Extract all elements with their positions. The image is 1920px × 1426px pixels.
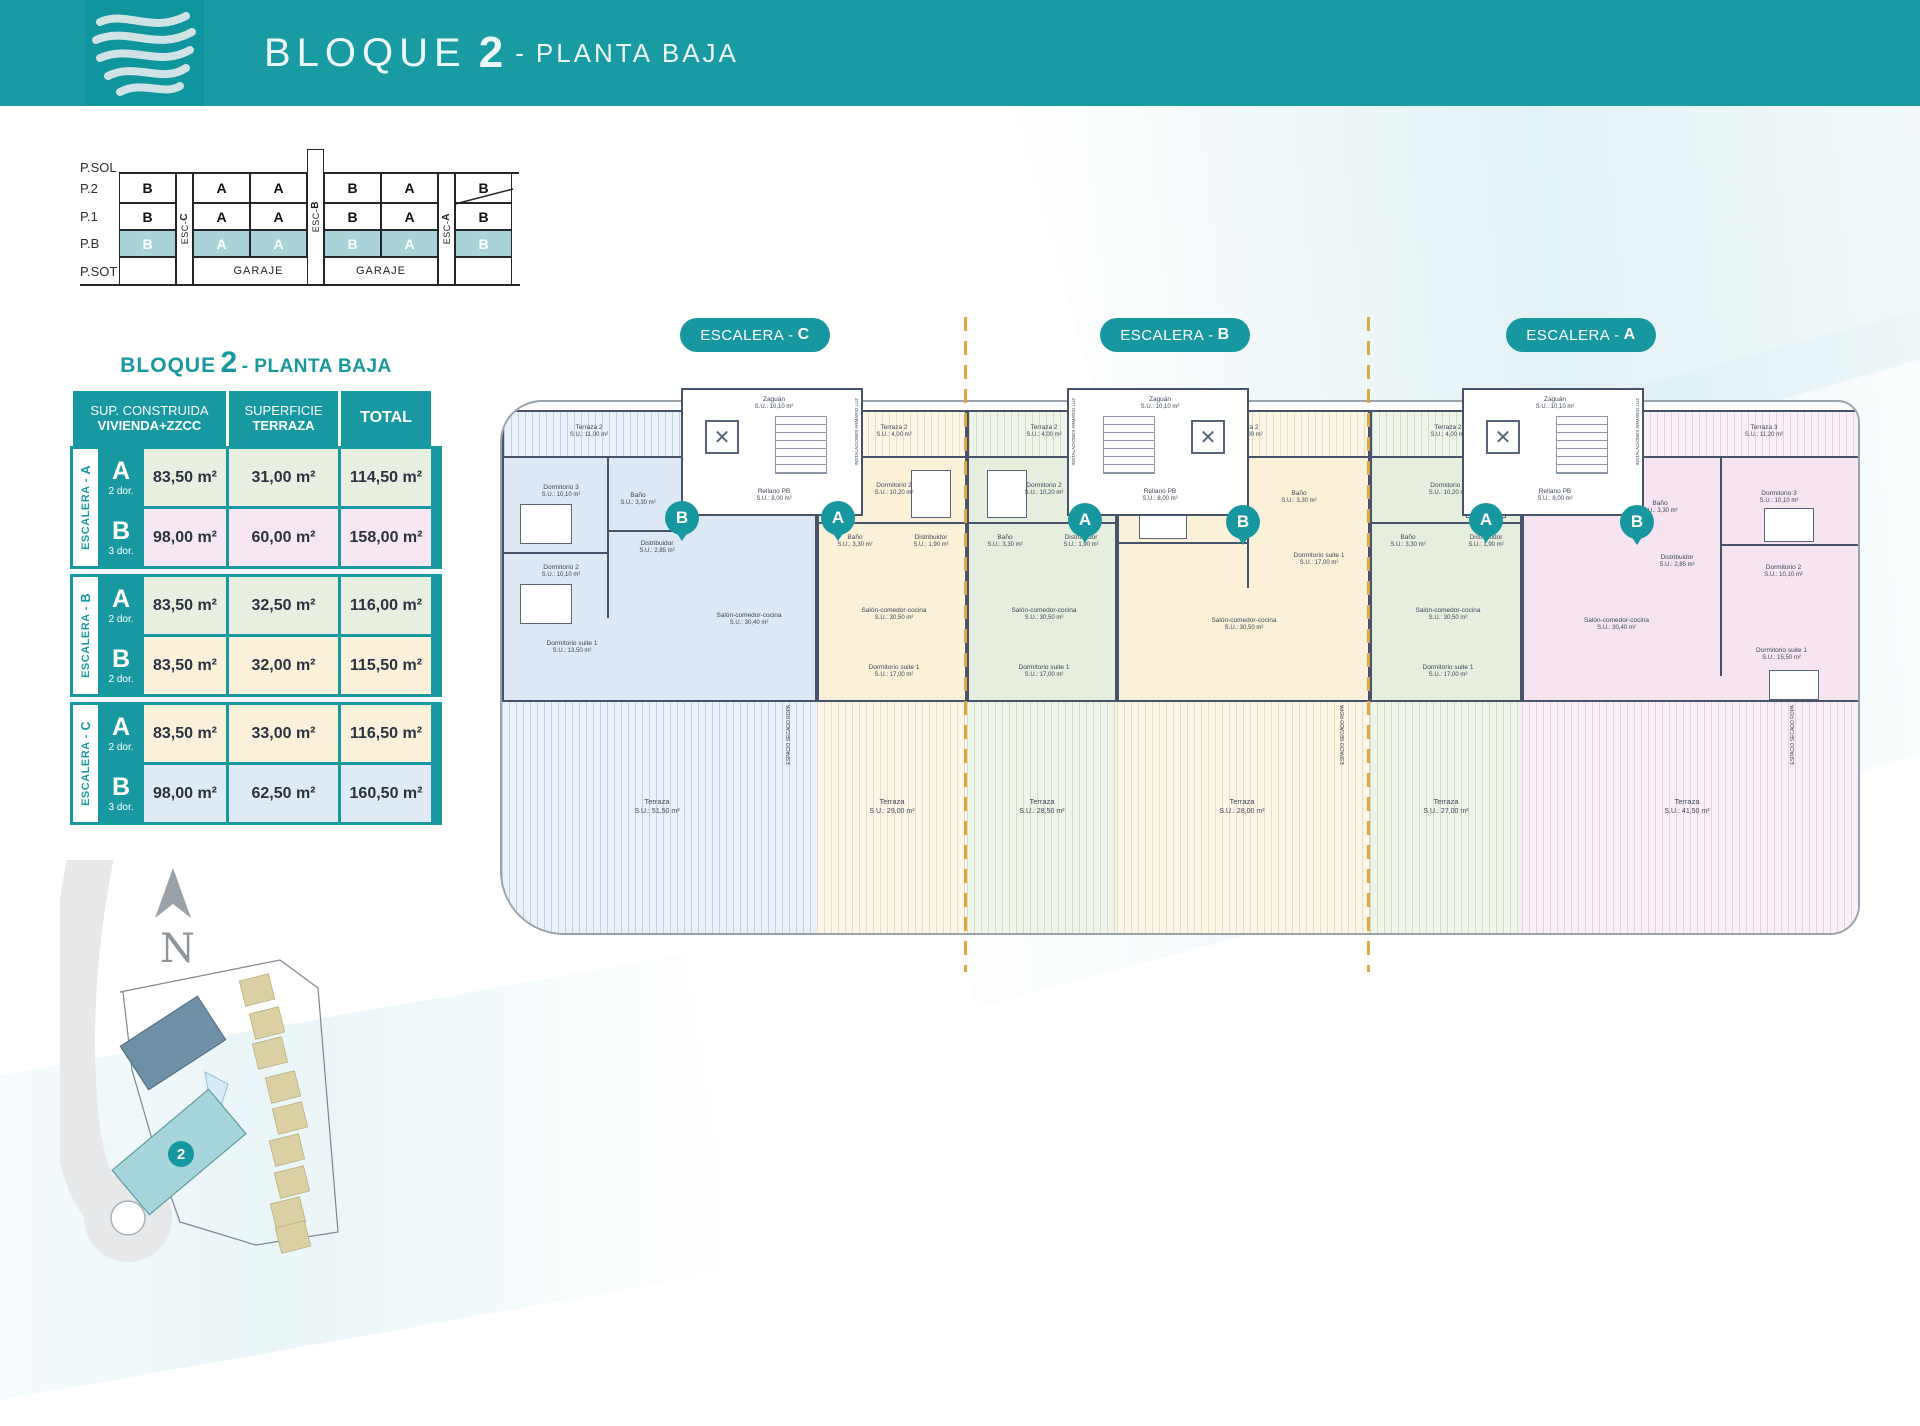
elevator-icon: ✕ bbox=[1486, 420, 1520, 454]
escalera-c-pill: ESCALERA - C bbox=[680, 318, 830, 352]
room-label: Salón-comedor-cocinaS.U.: 30,50 m² bbox=[989, 607, 1099, 623]
total-value: 116,00 m² bbox=[341, 577, 431, 634]
stair-core-c: ZaguánS.U.: 10,10 m² ✕ Rellano PBS.U.: 8… bbox=[681, 388, 863, 516]
surfaces-table: BLOQUE 2 - PLANTA BAJA SUP. CONSTRUIDAVI… bbox=[70, 346, 442, 825]
terraza-value: 32,00 m² bbox=[229, 637, 338, 694]
rellano-label: Rellano PBS.U.: 8,00 m² bbox=[1510, 488, 1600, 504]
zaguan-label: ZaguánS.U.: 10,10 m² bbox=[729, 396, 819, 412]
zaguan-label: ZaguánS.U.: 10,10 m² bbox=[1115, 396, 1205, 412]
header-bar: BLOQUE 2 - PLANTA BAJA bbox=[0, 0, 1920, 106]
room-label: Dormitorio suite 1S.U.: 17,00 m² bbox=[994, 664, 1094, 680]
zaguan-label: ZaguánS.U.: 10,10 m² bbox=[1510, 396, 1600, 412]
stair-column-esc-a: ESC-A bbox=[438, 173, 455, 285]
unit-badge-b-a: A bbox=[1068, 503, 1102, 537]
stairs-icon bbox=[1103, 416, 1155, 474]
elevator-icon: ✕ bbox=[705, 420, 739, 454]
room-label: DistribuidorS.U.: 2,85 m² bbox=[622, 540, 692, 556]
escalera-a-pill: ESCALERA - A bbox=[1506, 318, 1656, 352]
construida-value: 98,00 m² bbox=[144, 765, 226, 822]
interior-wall bbox=[1720, 544, 1860, 546]
unit-type-cell: B3 dor. bbox=[101, 765, 141, 822]
esc-b-label: ESC-B bbox=[310, 201, 321, 232]
header-total: TOTAL bbox=[341, 391, 431, 446]
group-label-escalera-c: ESCALERA - C bbox=[73, 705, 98, 822]
terrace-b-a: TerrazaS.U.: 28,50 m² bbox=[967, 702, 1117, 933]
esc-a-label: ESC-A bbox=[441, 213, 452, 244]
room-label: Salón-comedor-cocinaS.U.: 30,40 m² bbox=[1559, 617, 1674, 633]
north-label: N bbox=[160, 926, 195, 972]
total-value: 158,00 m² bbox=[341, 509, 431, 566]
terrace-label: TerrazaS.U.: 41,50 m² bbox=[1622, 797, 1752, 816]
table-title: BLOQUE 2 - PLANTA BAJA bbox=[70, 346, 442, 380]
building-section-diagram: P.SOL P.2 P.1 P.B P.SOT B A A B A B B A … bbox=[80, 148, 530, 298]
terrace-a-a: TerrazaS.U.: 27,00 m² bbox=[1370, 702, 1522, 933]
north-arrow-icon: N bbox=[155, 868, 195, 972]
room-label: Dormitorio suite 1S.U.: 17,00 m² bbox=[1398, 664, 1498, 680]
room-label: Dormitorio 3S.U.: 10,10 m² bbox=[516, 484, 606, 500]
room-label: Dormitorio suite 1S.U.: 13,50 m² bbox=[522, 640, 622, 656]
stair-column-esc-b: ESC-B bbox=[307, 149, 324, 285]
unit-type-cell: A2 dor. bbox=[101, 449, 141, 506]
site-plan: N 2 bbox=[60, 860, 360, 1280]
esc-c-label: ESC-C bbox=[179, 213, 190, 244]
bed-furniture bbox=[520, 584, 572, 624]
header-superficie-terraza: SUPERFICIETERRAZA bbox=[229, 391, 338, 446]
waves-logo-icon bbox=[86, 0, 204, 106]
stairs-icon bbox=[1556, 416, 1608, 474]
title-number: 2 bbox=[479, 28, 503, 78]
table-title-planta: - PLANTA BAJA bbox=[242, 356, 392, 377]
table-title-bloque: BLOQUE bbox=[120, 354, 216, 377]
rellano-label: Rellano PBS.U.: 8,00 m² bbox=[729, 488, 819, 504]
table-title-number: 2 bbox=[221, 346, 238, 379]
bed-furniture bbox=[520, 504, 572, 544]
total-value: 115,50 m² bbox=[341, 637, 431, 694]
bed-furniture bbox=[1764, 508, 1814, 542]
room-label: Dormitorio suite 1S.U.: 17,00 m² bbox=[1279, 552, 1359, 568]
construida-value: 83,50 m² bbox=[144, 637, 226, 694]
brand-logo bbox=[86, 0, 204, 106]
terraza-value: 32,50 m² bbox=[229, 577, 338, 634]
page-title: BLOQUE 2 - PLANTA BAJA bbox=[264, 0, 739, 106]
construida-value: 83,50 m² bbox=[144, 577, 226, 634]
terraza-value: 33,00 m² bbox=[229, 705, 338, 762]
unit-type-cell: A2 dor. bbox=[101, 705, 141, 762]
unit-badge-a-a: A bbox=[1469, 503, 1503, 537]
room-label: Dormitorio suite 1S.U.: 17,00 m² bbox=[844, 664, 944, 680]
room-label: Salón-comedor-cocinaS.U.: 30,50 m² bbox=[1184, 617, 1304, 633]
townhouses bbox=[239, 974, 310, 1253]
unit-badge-a-b: B bbox=[1620, 505, 1654, 539]
interior-wall bbox=[1119, 542, 1247, 544]
interior-wall bbox=[1720, 458, 1722, 676]
escalera-b-pill: ESCALERA - B bbox=[1100, 318, 1250, 352]
secado-ropa-label: ESPACIO SECADO ROPA bbox=[786, 705, 792, 765]
rellano-label: Rellano PBS.U.: 8,00 m² bbox=[1115, 488, 1205, 504]
room-label: BañoS.U.: 3,30 m² bbox=[1378, 534, 1438, 550]
room-label: DistribuidorS.U.: 2,85 m² bbox=[1642, 554, 1712, 570]
room-label: BañoS.U.: 3,30 m² bbox=[1269, 490, 1329, 506]
unit-type-cell: A2 dor. bbox=[101, 577, 141, 634]
division-line-b-a bbox=[1367, 317, 1370, 972]
construida-value: 83,50 m² bbox=[144, 449, 226, 506]
stair-core-a: ZaguánS.U.: 10,10 m² ✕ Rellano PBS.U.: 8… bbox=[1462, 388, 1644, 516]
title-planta: PLANTA BAJA bbox=[536, 38, 739, 69]
block-2-number: 2 bbox=[177, 1146, 185, 1163]
unit-badge-c-b: B bbox=[665, 501, 699, 535]
total-value: 160,50 m² bbox=[341, 765, 431, 822]
terrace-label: TerrazaS.U.: 27,00 m² bbox=[1386, 797, 1506, 816]
instalaciones-label: INSTALACIONES ARMARIO LUZ bbox=[1071, 398, 1076, 465]
roundabout-island bbox=[111, 1201, 145, 1235]
room-label: Dormitorio 3S.U.: 10,10 m² bbox=[1729, 490, 1829, 506]
header-sup-construida: SUP. CONSTRUIDAVIVIENDA+ZZCC bbox=[73, 391, 226, 446]
construida-value: 98,00 m² bbox=[144, 509, 226, 566]
terrace-c-b: TerrazaS.U.: 51,50 m² bbox=[502, 702, 817, 933]
terrace-b-b: TerrazaS.U.: 28,00 m² bbox=[1117, 702, 1370, 933]
table-group-escalera-c: ESCALERA - C A2 dor. 83,50 m² 33,00 m² 1… bbox=[70, 702, 442, 825]
instalaciones-label: INSTALACIONES ARMARIO LUZ bbox=[1635, 398, 1640, 465]
elevator-icon: ✕ bbox=[1191, 420, 1225, 454]
room-label: Salón-comedor-cocinaS.U.: 30,50 m² bbox=[839, 607, 949, 623]
terraza-value: 31,00 m² bbox=[229, 449, 338, 506]
room-label: Terraza 2S.U.: 11,00 m² bbox=[534, 424, 644, 440]
title-bloque: BLOQUE bbox=[264, 31, 467, 76]
table-header-row: SUP. CONSTRUIDAVIVIENDA+ZZCC SUPERFICIET… bbox=[70, 388, 442, 449]
construida-value: 83,50 m² bbox=[144, 705, 226, 762]
division-line-c-b bbox=[964, 317, 967, 972]
table-group-escalera-a: ESCALERA - A A2 dor. 83,50 m² 31,00 m² 1… bbox=[70, 446, 442, 569]
unit-type-cell: B2 dor. bbox=[101, 637, 141, 694]
total-value: 116,50 m² bbox=[341, 705, 431, 762]
terraza-value: 62,50 m² bbox=[229, 765, 338, 822]
group-label-escalera-a: ESCALERA - A bbox=[73, 449, 98, 566]
room-label: Salón-comedor-cocinaS.U.: 30,50 m² bbox=[1393, 607, 1503, 623]
unit-type-cell: B3 dor. bbox=[101, 509, 141, 566]
section-diagonal-roof bbox=[80, 148, 530, 298]
stair-column-esc-c: ESC-C bbox=[176, 173, 193, 285]
terrace-label: TerrazaS.U.: 28,50 m² bbox=[982, 797, 1102, 816]
stair-core-b: ZaguánS.U.: 10,10 m² ✕ Rellano PBS.U.: 8… bbox=[1067, 388, 1249, 516]
room-label: Dormitorio 2S.U.: 10,10 m² bbox=[1736, 564, 1831, 580]
floor-plan: ESCALERA - C ESCALERA - B ESCALERA - A T… bbox=[500, 315, 1895, 980]
title-dash: - bbox=[515, 38, 524, 69]
table-group-escalera-b: ESCALERA - B A2 dor. 83,50 m² 32,50 m² 1… bbox=[70, 574, 442, 697]
room-label: BañoS.U.: 3,30 m² bbox=[975, 534, 1035, 550]
group-label-escalera-b: ESCALERA - B bbox=[73, 577, 98, 694]
terrace-label: TerrazaS.U.: 28,00 m² bbox=[1182, 797, 1302, 816]
unit-badge-b-b: B bbox=[1226, 505, 1260, 539]
secado-ropa-label: ESPACIO SECADO ROPA bbox=[1340, 705, 1346, 765]
room-label: Terraza 3S.U.: 11,20 m² bbox=[1704, 424, 1824, 440]
stairs-icon bbox=[775, 416, 827, 474]
room-label: BañoS.U.: 3,30 m² bbox=[612, 492, 664, 508]
terrace-a-b: TerrazaS.U.: 41,50 m² bbox=[1522, 702, 1860, 933]
room-label: Dormitorio suite 1S.U.: 15,50 m² bbox=[1729, 647, 1834, 663]
terrace-c-a: TerrazaS.U.: 29,00 m² bbox=[817, 702, 967, 933]
total-value: 114,50 m² bbox=[341, 449, 431, 506]
terrace-label: TerrazaS.U.: 51,50 m² bbox=[592, 797, 722, 816]
room-label: Dormitorio 2S.U.: 10,10 m² bbox=[516, 564, 606, 580]
terrace-label: TerrazaS.U.: 29,00 m² bbox=[832, 797, 952, 816]
room-label: Salón-comedor-cocinaS.U.: 30,40 m² bbox=[694, 612, 804, 628]
terraza-value: 60,00 m² bbox=[229, 509, 338, 566]
interior-wall bbox=[504, 552, 607, 554]
secado-ropa-label: ESPACIO SECADO ROPA bbox=[1790, 705, 1796, 765]
interior-wall bbox=[607, 458, 609, 618]
instalaciones-label: INSTALACIONES ARMARIO LUZ bbox=[854, 398, 859, 465]
road bbox=[72, 860, 112, 1212]
room-label: DistribuidorS.U.: 1,90 m² bbox=[899, 534, 963, 550]
bed-furniture bbox=[1769, 670, 1819, 700]
unit-badge-c-a: A bbox=[821, 501, 855, 535]
